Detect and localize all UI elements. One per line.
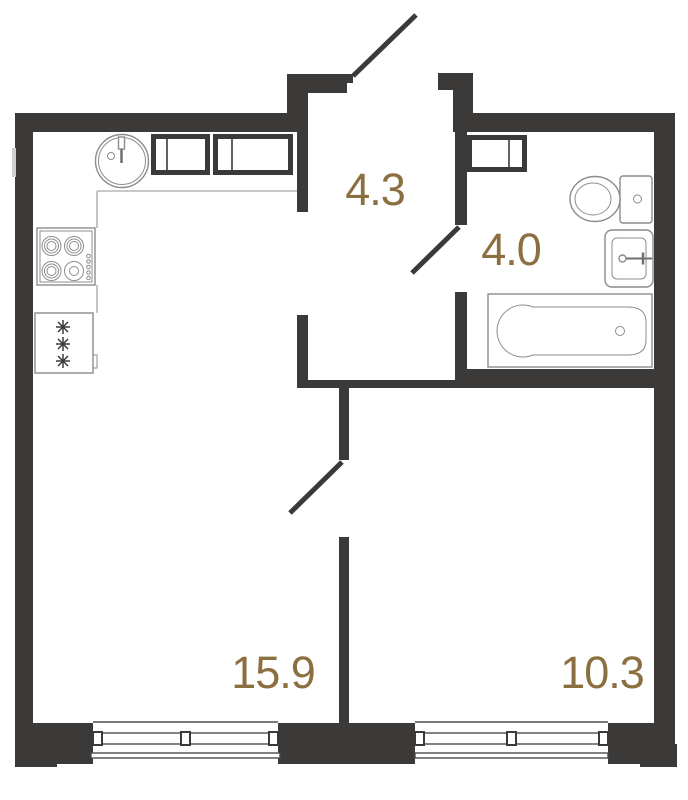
fridge-icon (35, 313, 97, 373)
floor-plan: 4.3 4.0 15.9 10.3 (0, 0, 688, 800)
window-bedroom (415, 722, 608, 758)
entrance-door-swing-icon (353, 15, 416, 76)
room-area-label-bathroom: 4.0 (481, 224, 541, 276)
kitchen-sink (96, 135, 149, 188)
bedroom-door-swing-icon (290, 462, 342, 513)
room-area-label-hallway: 4.3 (345, 164, 405, 216)
toilet-icon (570, 176, 652, 223)
room-area-label-bedroom: 10.3 (560, 647, 644, 699)
room-area-label-living-kitchen: 15.9 (231, 647, 315, 699)
bathroom-cabinet (470, 138, 525, 170)
bathroom-door-swing-icon (412, 227, 459, 273)
wall-joint-mark (12, 148, 16, 177)
kitchen-cabinets (154, 137, 291, 173)
bathtub-icon (488, 294, 652, 367)
washbasin-icon (605, 230, 653, 287)
hob-icon (37, 228, 95, 285)
window-living (91, 722, 280, 758)
kitchen-counter (97, 191, 297, 313)
